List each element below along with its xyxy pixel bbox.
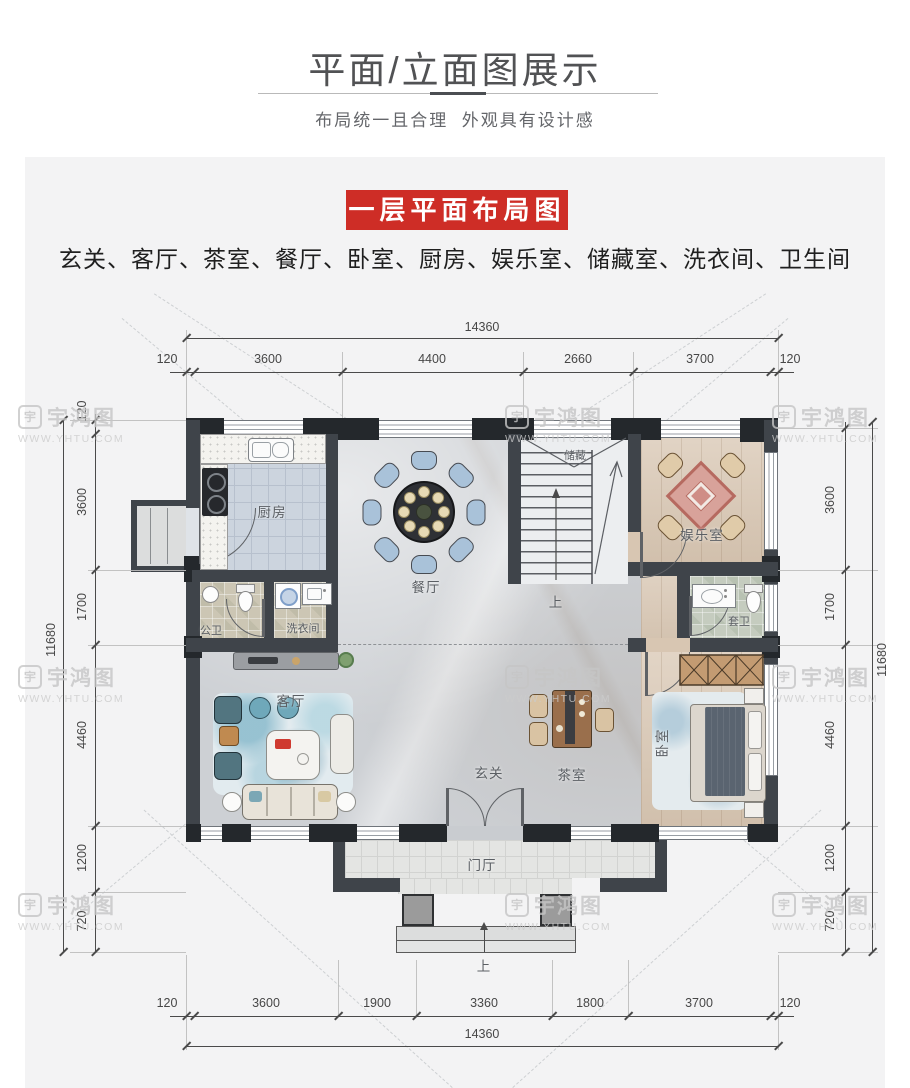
sofa bbox=[242, 784, 338, 820]
room-label-living: 客厅 bbox=[277, 690, 306, 710]
dim-bottom-3360: 3360 bbox=[470, 996, 498, 1010]
plant bbox=[338, 652, 354, 668]
wall-pier bbox=[399, 824, 447, 842]
entrance-door-right bbox=[485, 788, 523, 826]
dim-bottom-total: 14360 bbox=[465, 1027, 500, 1041]
armchair bbox=[214, 752, 242, 780]
dim-left-1200: 1200 bbox=[75, 844, 89, 872]
dim-line-left-segments bbox=[95, 414, 96, 952]
room-label-porch: 门厅 bbox=[468, 854, 497, 874]
bed bbox=[690, 704, 766, 802]
dim-bottom-1800: 1800 bbox=[576, 996, 604, 1010]
entertainment-window bbox=[764, 452, 778, 550]
dim-top-total: 14360 bbox=[465, 320, 500, 334]
dim-left-3600: 3600 bbox=[75, 488, 89, 516]
room-label-stairs-up: 上 bbox=[549, 591, 564, 611]
ensuite-sink bbox=[692, 584, 736, 608]
porch-pillar bbox=[540, 894, 572, 926]
kitchen-right-wall bbox=[326, 434, 338, 652]
wardrobe bbox=[679, 654, 764, 686]
entrance-threshold bbox=[447, 826, 523, 840]
stairs-left-wall bbox=[508, 434, 521, 584]
kitchen-bottom-wall bbox=[192, 570, 326, 582]
side-table bbox=[219, 726, 239, 746]
dim-bottom-1900: 1900 bbox=[363, 996, 391, 1010]
side-porch bbox=[131, 500, 187, 572]
washing-machine bbox=[275, 583, 301, 609]
dim-left-1700: 1700 bbox=[75, 593, 89, 621]
room-label-entertainment: 娱乐室 bbox=[680, 524, 724, 544]
dim-left-720: 720 bbox=[75, 911, 89, 932]
dim-line-right-segments bbox=[845, 422, 846, 952]
dining-centerpiece bbox=[416, 504, 432, 520]
pouf bbox=[249, 697, 271, 719]
porch-wall bbox=[600, 878, 667, 892]
dim-left-4460: 4460 bbox=[75, 721, 89, 749]
title-divider bbox=[258, 92, 658, 95]
dim-left-120: 120 bbox=[75, 401, 89, 422]
wall-pier bbox=[309, 824, 357, 842]
room-label-entry-up: 上 bbox=[477, 955, 492, 975]
room-label-public-bath: 公卫 bbox=[200, 622, 222, 638]
side-porch-step bbox=[150, 508, 151, 564]
open-boundary-line bbox=[338, 644, 628, 645]
tea-table bbox=[552, 690, 592, 748]
poster-page: 平面/立面图展示 布局统一且合理 外观具有设计感 一层平面布局图 玄关、客厅、茶… bbox=[0, 0, 910, 1088]
armchair bbox=[214, 696, 242, 724]
room-label-storage: 储藏 bbox=[564, 447, 586, 463]
dim-right-1700: 1700 bbox=[823, 593, 837, 621]
dim-top-4400: 4400 bbox=[418, 352, 446, 366]
room-label-tea: 茶室 bbox=[558, 764, 587, 784]
dim-line-left-total bbox=[63, 420, 64, 952]
porch-pillar bbox=[402, 894, 434, 926]
dim-top-120l: 120 bbox=[157, 352, 178, 366]
tv-console bbox=[233, 652, 339, 670]
round-side-table bbox=[336, 792, 356, 812]
room-label-kitchen: 厨房 bbox=[258, 501, 287, 521]
dim-line-bottom-segments bbox=[170, 1016, 794, 1017]
section-badge: 一层平面布局图 bbox=[346, 190, 568, 230]
entrance-door-left bbox=[447, 788, 485, 826]
room-label-ensuite: 套卫 bbox=[728, 613, 750, 629]
dim-right-720: 720 bbox=[823, 911, 837, 932]
dim-line-right-total bbox=[872, 422, 873, 952]
wall-pier bbox=[222, 824, 251, 842]
room-list: 玄关、客厅、茶室、餐厅、卧室、厨房、娱乐室、储藏室、洗衣间、卫生间 bbox=[0, 240, 910, 274]
dim-top-3700: 3700 bbox=[686, 352, 714, 366]
dim-line-bottom-total bbox=[186, 1046, 778, 1047]
room-label-bedroom: 卧室 bbox=[651, 729, 671, 758]
dim-bottom-3600: 3600 bbox=[252, 996, 280, 1010]
porch-floor bbox=[398, 878, 572, 894]
room-label-laundry: 洗衣间 bbox=[287, 620, 320, 636]
dim-right-3600: 3600 bbox=[823, 486, 837, 514]
washbasin bbox=[202, 586, 219, 603]
chaise-chair bbox=[330, 714, 354, 774]
dim-line-top-segments bbox=[170, 372, 794, 373]
dim-bottom-3700: 3700 bbox=[685, 996, 713, 1010]
dim-left-total: 11680 bbox=[44, 623, 58, 657]
page-subtitle: 布局统一且合理 外观具有设计感 bbox=[0, 106, 910, 131]
room-label-dining: 餐厅 bbox=[412, 576, 441, 596]
nightstand bbox=[744, 688, 764, 704]
dim-right-total: 11680 bbox=[875, 643, 889, 677]
wall-pier bbox=[523, 824, 571, 842]
tea-chair bbox=[529, 722, 548, 746]
laundry-sink bbox=[302, 583, 332, 605]
bath-bottom-wall bbox=[186, 638, 338, 652]
dim-top-120r: 120 bbox=[780, 352, 801, 366]
side-porch-step bbox=[167, 508, 168, 564]
entry-arrow-head bbox=[480, 922, 488, 930]
room-label-foyer: 玄关 bbox=[475, 762, 504, 782]
tea-chair bbox=[595, 708, 614, 732]
entry-step bbox=[396, 940, 576, 953]
wall-pier bbox=[611, 824, 659, 842]
porch-wall bbox=[333, 878, 400, 892]
stove bbox=[202, 468, 228, 516]
dim-line-top-total bbox=[186, 338, 778, 339]
kitchen-sink bbox=[248, 438, 294, 462]
wall-pier bbox=[748, 824, 778, 842]
bedroom-door-opening bbox=[646, 638, 690, 652]
dim-bottom-120r: 120 bbox=[780, 996, 801, 1010]
porch-floor bbox=[345, 840, 655, 878]
dim-top-3600: 3600 bbox=[254, 352, 282, 366]
dim-right-1200: 1200 bbox=[823, 844, 837, 872]
dim-bottom-120l: 120 bbox=[157, 996, 178, 1010]
tea-chair bbox=[529, 694, 548, 718]
nightstand bbox=[744, 802, 764, 818]
round-side-table bbox=[222, 792, 242, 812]
wall-pier bbox=[186, 824, 201, 842]
bedroom-window bbox=[764, 664, 778, 776]
ensuite-window bbox=[764, 584, 778, 632]
left-wall bbox=[186, 420, 200, 840]
coffee-table bbox=[266, 730, 320, 780]
dim-right-4460: 4460 bbox=[823, 721, 837, 749]
dim-top-2660: 2660 bbox=[564, 352, 592, 366]
page-title: 平面/立面图展示 bbox=[0, 40, 910, 94]
